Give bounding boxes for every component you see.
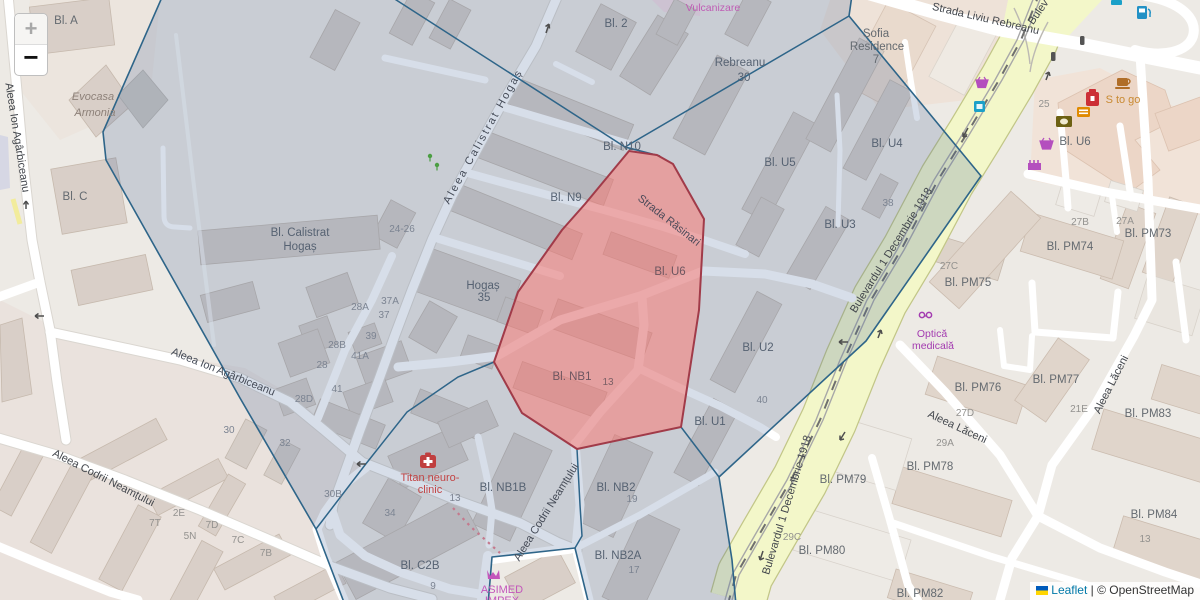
svg-text:Bl. 2: Bl. 2 (604, 18, 627, 30)
svg-text:41A: 41A (351, 351, 369, 362)
svg-text:Bl. PM82: Bl. PM82 (897, 588, 944, 600)
svg-text:28D: 28D (295, 394, 313, 405)
svg-text:Evocasa: Evocasa (72, 91, 114, 103)
svg-text:Bl. NB2A: Bl. NB2A (595, 550, 642, 562)
svg-text:25: 25 (1038, 99, 1050, 110)
svg-text:37: 37 (378, 310, 390, 321)
svg-text:Optică: Optică (917, 328, 948, 340)
svg-text:7B: 7B (260, 548, 273, 559)
svg-text:Bl. PM84: Bl. PM84 (1131, 509, 1178, 521)
svg-text:Vulcanizare: Vulcanizare (686, 2, 741, 14)
svg-text:28B: 28B (328, 340, 346, 351)
svg-text:Bl. Calistrat: Bl. Calistrat (271, 227, 331, 239)
svg-text:39: 39 (365, 331, 377, 342)
svg-text:Bl. NB1B: Bl. NB1B (480, 482, 527, 494)
svg-text:medicală: medicală (912, 340, 954, 352)
svg-text:Bl. U6: Bl. U6 (1059, 136, 1090, 148)
svg-text:Bl. C2B: Bl. C2B (401, 560, 440, 572)
svg-text:Bl. A: Bl. A (54, 15, 78, 27)
svg-text:32: 32 (279, 438, 291, 449)
svg-text:Bl. PM76: Bl. PM76 (955, 382, 1002, 394)
svg-text:Bl. NB2: Bl. NB2 (597, 482, 636, 494)
svg-text:2E: 2E (173, 508, 186, 519)
svg-text:Bl. PM73: Bl. PM73 (1125, 228, 1172, 240)
svg-text:IMPEX: IMPEX (485, 595, 520, 600)
svg-text:30: 30 (223, 425, 235, 436)
svg-text:35: 35 (478, 292, 491, 304)
svg-text:37A: 37A (381, 296, 399, 307)
svg-text:Bl. PM74: Bl. PM74 (1047, 241, 1094, 253)
svg-text:Bl. U4: Bl. U4 (871, 138, 903, 150)
svg-text:13: 13 (449, 493, 461, 504)
svg-text:30B: 30B (324, 489, 342, 500)
svg-text:30: 30 (738, 72, 751, 84)
svg-text:28A: 28A (351, 302, 369, 313)
svg-text:S to go: S to go (1106, 94, 1141, 106)
svg-text:Armonia: Armonia (74, 107, 116, 119)
svg-text:34: 34 (384, 508, 396, 519)
svg-text:Hogaș: Hogaș (466, 280, 499, 292)
svg-text:Bl. U5: Bl. U5 (764, 157, 795, 169)
svg-text:7D: 7D (206, 520, 219, 531)
svg-text:Bl. PM79: Bl. PM79 (820, 474, 867, 486)
svg-text:Residence: Residence (850, 41, 904, 53)
svg-text:Bl. U3: Bl. U3 (824, 219, 855, 231)
svg-text:41: 41 (331, 384, 343, 395)
svg-text:Hogaș: Hogaș (283, 241, 316, 253)
svg-text:27B: 27B (1071, 217, 1089, 228)
svg-text:13: 13 (602, 377, 614, 388)
svg-text:5N: 5N (184, 531, 197, 542)
svg-text:Bl. U6: Bl. U6 (654, 266, 685, 278)
svg-text:40: 40 (756, 395, 768, 406)
svg-text:Bl. PM75: Bl. PM75 (945, 277, 992, 289)
svg-text:Bl. PM78: Bl. PM78 (907, 461, 954, 473)
svg-text:Sofia: Sofia (863, 28, 890, 40)
svg-text:Bl. N10: Bl. N10 (603, 141, 641, 153)
svg-text:27A: 27A (1116, 216, 1134, 227)
svg-text:27C: 27C (940, 261, 958, 272)
svg-text:29C: 29C (783, 532, 801, 543)
svg-text:Bl. U2: Bl. U2 (742, 342, 773, 354)
svg-text:Bl. N9: Bl. N9 (550, 192, 581, 204)
svg-text:Rebreanu: Rebreanu (715, 57, 766, 69)
svg-text:17: 17 (628, 565, 640, 576)
svg-text:Titan neuro-: Titan neuro- (401, 472, 460, 484)
svg-text:24-26: 24-26 (389, 224, 415, 235)
svg-text:28: 28 (316, 360, 328, 371)
svg-text:7T: 7T (149, 518, 161, 529)
svg-text:Bl. NB1: Bl. NB1 (553, 371, 592, 383)
svg-text:7: 7 (873, 54, 879, 66)
svg-text:Bl. PM77: Bl. PM77 (1033, 374, 1080, 386)
svg-text:9: 9 (430, 581, 436, 592)
svg-text:Bl. C: Bl. C (63, 191, 88, 203)
svg-text:38: 38 (882, 198, 894, 209)
svg-text:clinic: clinic (418, 484, 443, 496)
svg-text:Bl. PM83: Bl. PM83 (1125, 408, 1172, 420)
svg-text:Bl. PM80: Bl. PM80 (799, 545, 846, 557)
svg-text:Bl. U1: Bl. U1 (694, 416, 725, 428)
svg-text:21E: 21E (1070, 404, 1088, 415)
svg-text:27D: 27D (956, 408, 974, 419)
svg-text:29A: 29A (936, 438, 954, 449)
svg-text:13: 13 (1139, 534, 1151, 545)
svg-text:7C: 7C (232, 535, 245, 546)
svg-text:19: 19 (626, 494, 638, 505)
